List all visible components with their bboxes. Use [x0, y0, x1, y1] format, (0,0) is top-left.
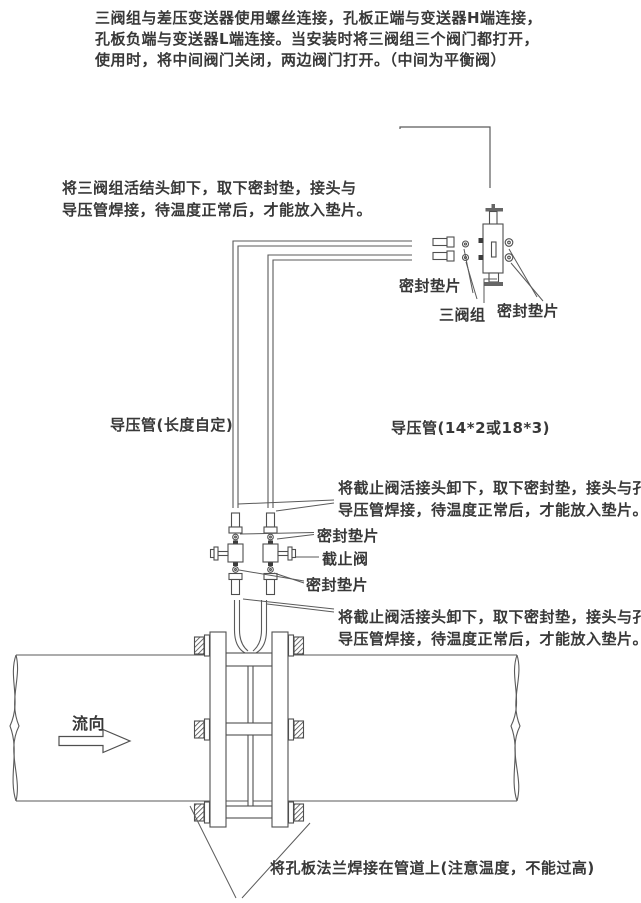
- gasket-ring-icon: [268, 534, 274, 540]
- seal-gasket-label-manifold-left: 密封垫片: [399, 276, 461, 297]
- manifold-union-note-line1: 将三阀组活结头卸下，取下密封垫，接头与: [62, 177, 372, 199]
- stop-valve-lower-note: 将截止阀活接头卸下，取下密封垫，接头与孔板 导压管焊接，待温度正常后，才能放入垫…: [338, 606, 641, 650]
- union-cap: [447, 251, 454, 261]
- manifold-port-lower: [479, 255, 484, 260]
- flange-bar-top: [226, 653, 272, 666]
- gasket-ring-icon: [505, 254, 513, 262]
- stop-valve-label: 截止阀: [322, 549, 369, 570]
- seal-gasket-label-manifold-right: 密封垫片: [497, 301, 559, 322]
- bolt-head-icon: [195, 721, 205, 738]
- three-valve-manifold: [479, 204, 513, 286]
- transmitter-connection-line: [400, 127, 490, 188]
- diagram-linework: [0, 0, 641, 903]
- flange-plate-right: [272, 632, 288, 827]
- stop-valve-right: [263, 541, 296, 567]
- union-cap: [447, 237, 454, 247]
- impulse-pipe-custom-label: 导压管(长度自定): [110, 415, 233, 436]
- top-note-line3: 使用时，将中间阀门关闭，两边阀门打开。（中间为平衡阀）: [95, 50, 542, 71]
- seal-gasket-label-valve-lower: 密封垫片: [306, 575, 368, 596]
- flow-direction-label: 流向: [72, 713, 105, 734]
- manifold-stem: [490, 212, 498, 225]
- gasket-ring-icon: [233, 534, 239, 540]
- seal-gasket-label-valve-upper: 密封垫片: [317, 526, 379, 547]
- flange-plate-left: [210, 632, 226, 827]
- manifold-union-note-line2: 导压管焊接，待温度正常后，才能放入垫片。: [62, 199, 372, 221]
- manifold-port-upper: [479, 238, 484, 243]
- stop-valve-lower-note-line2: 导压管焊接，待温度正常后，才能放入垫片。: [338, 628, 641, 650]
- bolt-head-icon: [294, 637, 304, 654]
- pipe-break-left: [10, 655, 16, 801]
- stop-valve-lower-note-line1: 将截止阀活接头卸下，取下密封垫，接头与孔板: [338, 606, 641, 628]
- union-body: [433, 239, 447, 246]
- gasket-ring-icon: [463, 241, 469, 247]
- stop-valve-assembly: [211, 513, 296, 595]
- stop-valve-upper-note: 将截止阀活接头卸下，取下密封垫，接头与孔板 导压管焊接，待温度正常后，才能放入垫…: [338, 477, 641, 521]
- bolt-head-icon: [294, 721, 304, 738]
- gasket-ring-icon: [505, 239, 513, 247]
- manifold-label: 三阀组: [439, 305, 486, 326]
- installation-diagram: 三阀组与差压变送器使用螺丝连接，孔板正端与变送器H端连接， 孔板负端与变送器L端…: [0, 0, 641, 903]
- gasket-ring-icon: [233, 567, 239, 573]
- flange-bar-middle: [226, 723, 272, 735]
- top-note: 三阀组与差压变送器使用螺丝连接，孔板正端与变送器H端连接， 孔板负端与变送器L端…: [95, 8, 542, 71]
- orifice-flange-assembly: [195, 632, 304, 827]
- flange-bar-bottom: [226, 806, 272, 818]
- manifold-bottom-stem: [489, 273, 499, 282]
- bolt-head-icon: [195, 637, 205, 654]
- bolt-head-icon: [294, 804, 304, 821]
- pipe-break-right: [511, 655, 517, 801]
- manifold-unions: [433, 237, 469, 261]
- stop-valve-left: [211, 541, 244, 567]
- impulse-pipe-size-label: 导压管(14*2或18*3): [391, 418, 550, 439]
- stop-valve-upper-note-line1: 将截止阀活接头卸下，取下密封垫，接头与孔板: [338, 477, 641, 499]
- stop-valve-upper-note-line2: 导压管焊接，待温度正常后，才能放入垫片。: [338, 499, 641, 521]
- impulse-pipes-lower: [235, 600, 267, 653]
- flange-weld-note: 将孔板法兰焊接在管道上(注意温度，不能过高): [270, 858, 595, 879]
- manifold-union-note: 将三阀组活结头卸下，取下密封垫，接头与 导压管焊接，待温度正常后，才能放入垫片。: [62, 177, 372, 221]
- manifold-slot: [492, 242, 497, 257]
- top-note-line1: 三阀组与差压变送器使用螺丝连接，孔板正端与变送器H端连接，: [95, 8, 542, 29]
- union-body: [433, 253, 447, 260]
- gasket-ring-icon: [268, 567, 274, 573]
- impulse-pipes-upper: [233, 241, 412, 508]
- manifold-base: [485, 282, 504, 286]
- top-note-line2: 孔板负端与变送器L端连接。当安装时将三阀组三个阀门都打开，: [95, 29, 542, 50]
